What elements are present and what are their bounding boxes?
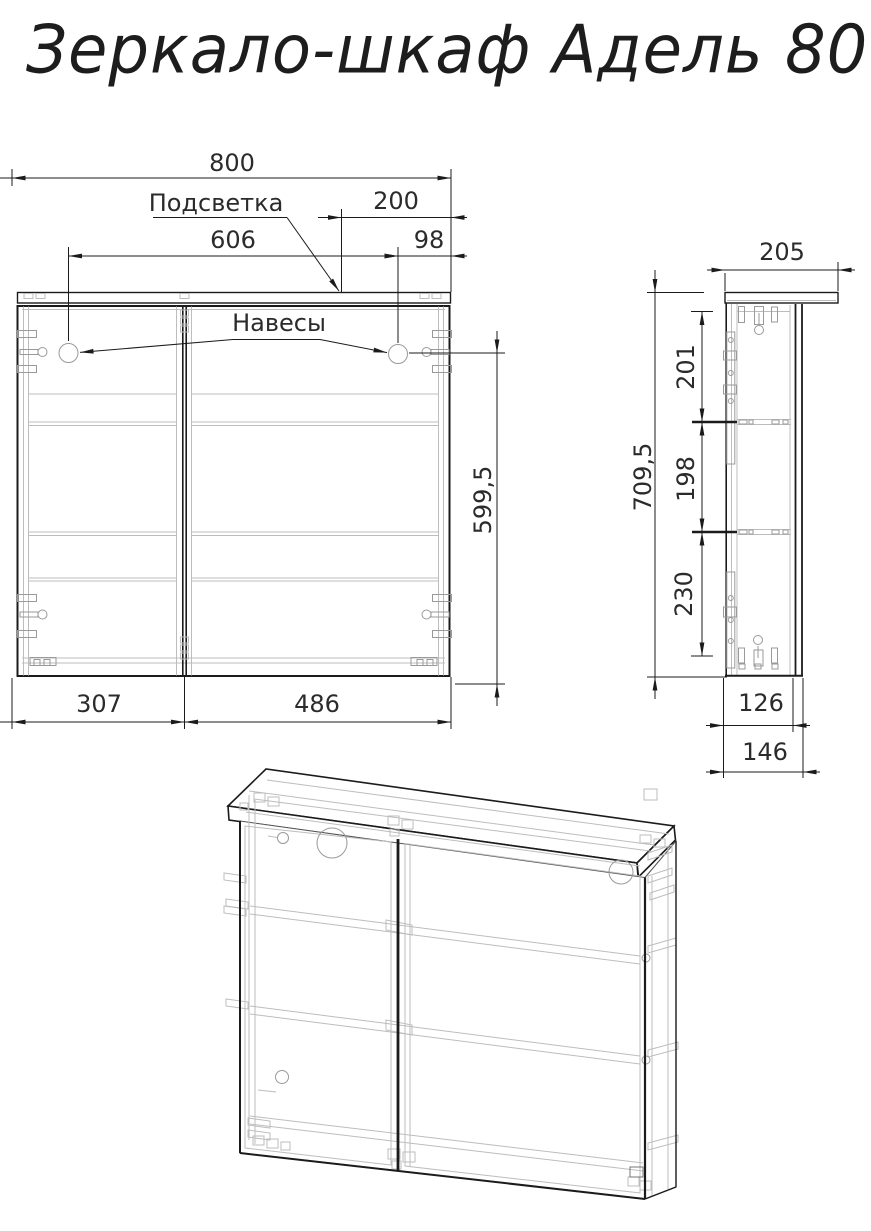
label-hangers: Навесы xyxy=(232,309,326,337)
dim-total-height: 709,5 xyxy=(629,443,657,512)
front-view xyxy=(18,293,452,677)
dim-body-depth: 126 xyxy=(738,689,784,717)
dim-right-door-width: 486 xyxy=(294,690,340,718)
iso-front-face xyxy=(240,821,645,1199)
side-cornice xyxy=(725,293,838,304)
side-shelves xyxy=(692,420,791,535)
side-view xyxy=(692,293,838,677)
dim-overall-depth: 146 xyxy=(742,738,788,766)
front-cabinet-body xyxy=(18,306,450,676)
dim-hanger-to-bottom: 599,5 xyxy=(469,466,497,535)
dim-backlight-width: 200 xyxy=(373,187,419,215)
front-backlight-strip xyxy=(18,293,451,304)
dim-hanger-spacing: 606 xyxy=(210,226,256,254)
dim-lower-section: 230 xyxy=(670,571,698,617)
isometric-view xyxy=(224,769,678,1199)
dim-hanger-offset: 98 xyxy=(414,226,445,254)
label-backlight: Подсветка xyxy=(149,189,284,217)
drawing-page: Зеркало-шкаф Адель 80 xyxy=(0,0,871,1231)
dim-total-depth: 205 xyxy=(759,238,805,266)
technical-drawing-canvas: 800 Подсветка 200 606 98 Навесы 599,5 30… xyxy=(0,0,871,1231)
side-view-dimensions: 205 201 198 230 709,5 126 146 xyxy=(629,238,855,778)
dim-middle-section: 198 xyxy=(672,456,700,502)
dim-left-door-width: 307 xyxy=(76,690,122,718)
dim-upper-section: 201 xyxy=(672,344,700,390)
dim-total-width: 800 xyxy=(209,149,255,177)
